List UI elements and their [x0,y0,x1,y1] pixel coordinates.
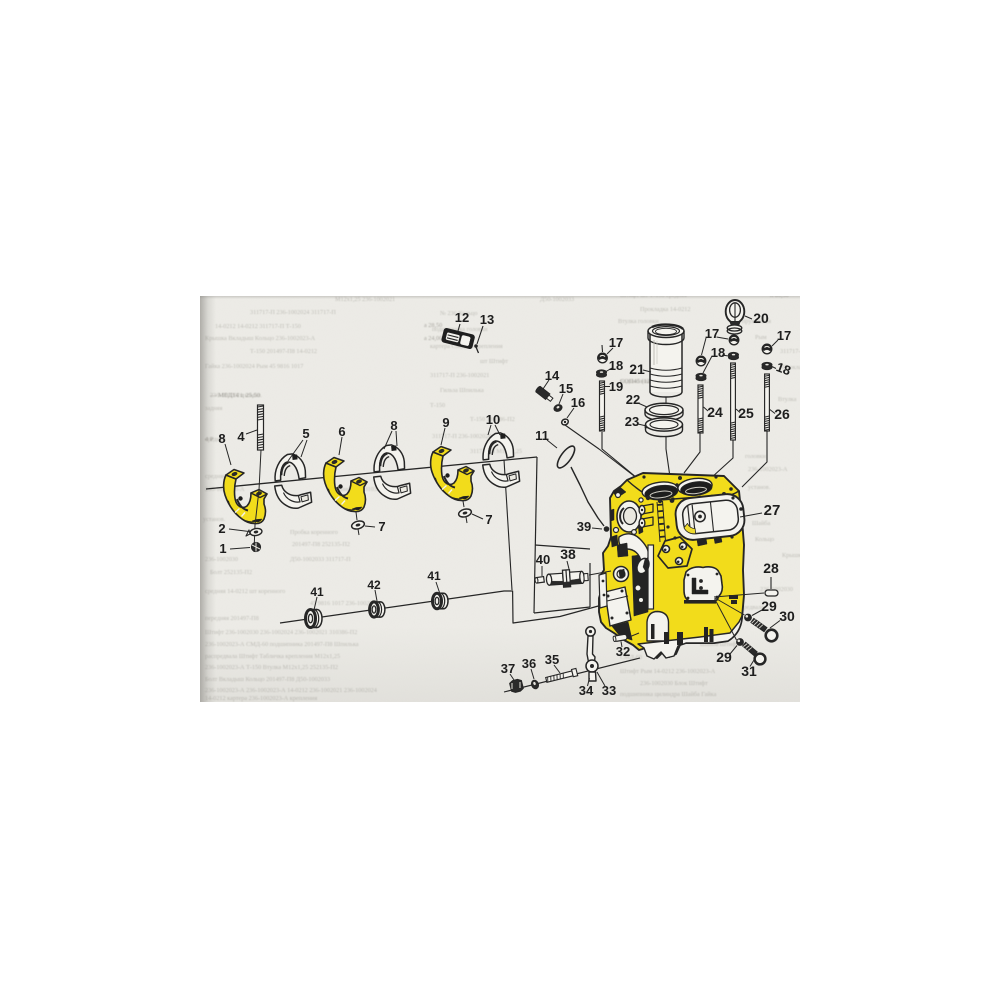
svg-text:40: 40 [536,552,550,567]
svg-text:28: 28 [763,560,779,576]
svg-text:25: 25 [738,405,754,421]
svg-text:26: 26 [774,406,790,422]
svg-text:33: 33 [602,683,616,698]
svg-text:11: 11 [535,428,549,443]
svg-text:41: 41 [310,585,324,599]
svg-text:18: 18 [774,359,793,378]
svg-text:17: 17 [777,328,791,343]
svg-text:30: 30 [779,608,795,624]
svg-text:7: 7 [485,512,492,527]
svg-text:38: 38 [560,546,576,562]
svg-text:8: 8 [218,431,225,446]
svg-text:6: 6 [338,424,345,439]
svg-text:5: 5 [302,426,309,441]
svg-text:13: 13 [480,312,494,327]
svg-text:29: 29 [761,598,777,614]
svg-text:1: 1 [219,541,226,556]
svg-text:18: 18 [711,345,725,360]
svg-text:41: 41 [427,569,441,583]
svg-text:39: 39 [577,519,591,534]
svg-text:31: 31 [741,663,757,679]
svg-text:8: 8 [390,418,397,433]
svg-text:12: 12 [455,310,469,325]
svg-text:23: 23 [625,414,639,429]
svg-text:15: 15 [559,381,573,396]
svg-text:32: 32 [616,644,630,659]
svg-text:9: 9 [442,415,449,430]
svg-text:7: 7 [378,519,385,534]
svg-text:21: 21 [629,361,645,377]
svg-text:19: 19 [609,379,623,394]
svg-text:4: 4 [237,429,245,444]
svg-text:29: 29 [716,649,732,665]
svg-text:42: 42 [367,578,381,592]
svg-text:2: 2 [218,521,225,536]
svg-text:36: 36 [522,656,536,671]
svg-text:17: 17 [705,326,719,341]
svg-text:35: 35 [545,652,559,667]
svg-text:34: 34 [579,683,594,698]
svg-text:18: 18 [609,358,623,373]
svg-text:27: 27 [764,502,781,519]
svg-text:37: 37 [501,661,515,676]
svg-text:22: 22 [626,392,640,407]
svg-text:24: 24 [707,404,723,420]
svg-text:10: 10 [486,412,500,427]
svg-text:17: 17 [609,335,623,350]
svg-text:14: 14 [545,368,560,383]
svg-text:20: 20 [753,310,769,326]
svg-text:16: 16 [571,395,585,410]
